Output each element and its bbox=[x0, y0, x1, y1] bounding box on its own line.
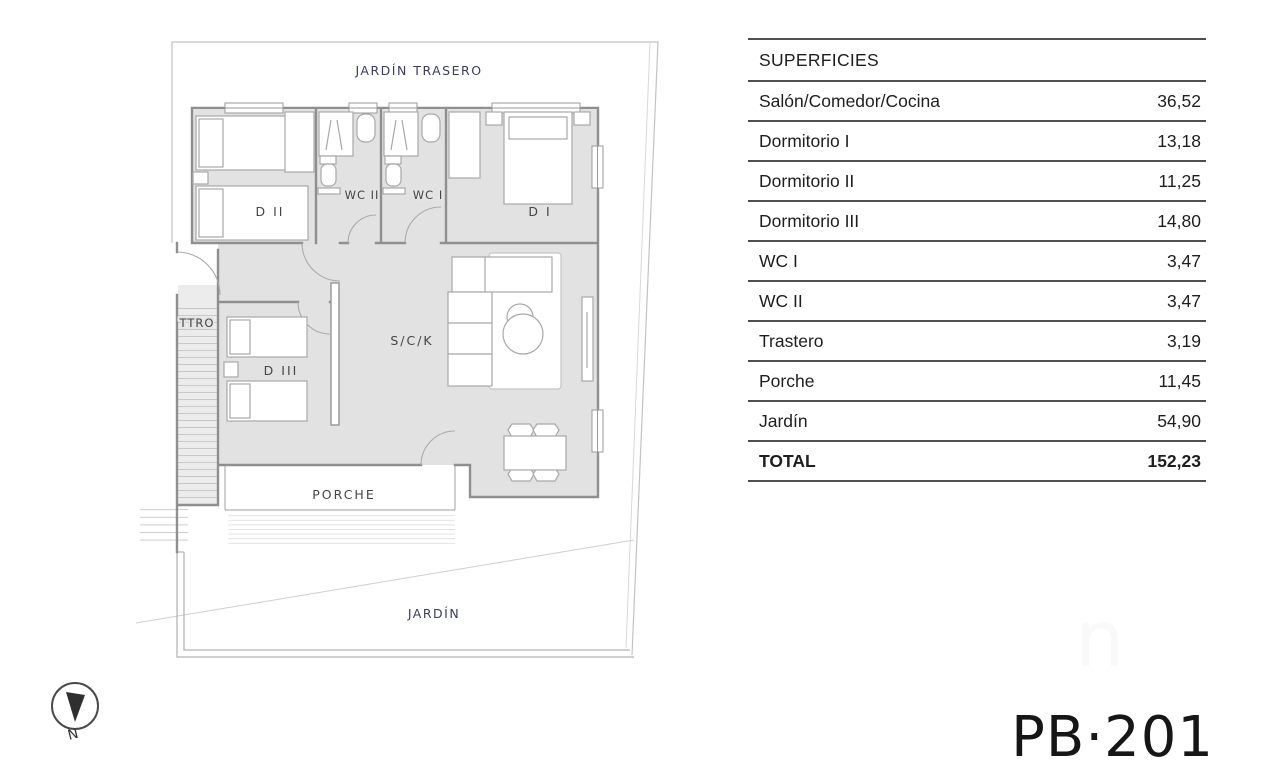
wc1-label: WC I bbox=[413, 188, 443, 202]
bedroom2-label: D II bbox=[256, 204, 285, 219]
table-row: Trastero 3,19 bbox=[748, 322, 1206, 362]
total-value: 152,23 bbox=[1147, 442, 1201, 480]
storage-hatch bbox=[178, 306, 217, 504]
row-value: 3,47 bbox=[1167, 242, 1201, 280]
table-row: Dormitorio III 14,80 bbox=[748, 202, 1206, 242]
row-label: Jardín bbox=[759, 402, 808, 440]
row-value: 14,80 bbox=[1157, 202, 1201, 240]
row-label: Dormitorio III bbox=[759, 202, 859, 240]
bedroom3-label: D III bbox=[264, 363, 299, 378]
surfaces-table: SUPERFICIES Salón/Comedor/Cocina 36,52 D… bbox=[748, 38, 1206, 482]
terrace-hatch bbox=[228, 513, 455, 546]
back-garden-label: JARDÍN TRASERO bbox=[354, 63, 482, 78]
north-arrow-icon bbox=[66, 692, 85, 722]
table-row: WC II 3,47 bbox=[748, 282, 1206, 322]
interior-thick-wall bbox=[331, 283, 339, 425]
table-total-row: TOTAL 152,23 bbox=[748, 442, 1206, 482]
table-row: WC I 3,47 bbox=[748, 242, 1206, 282]
table-row: Salón/Comedor/Cocina 36,52 bbox=[748, 82, 1206, 122]
dining-furniture bbox=[504, 424, 566, 481]
row-value: 54,90 bbox=[1157, 402, 1201, 440]
row-value: 11,25 bbox=[1159, 162, 1202, 200]
table-row: Dormitorio I 13,18 bbox=[748, 122, 1206, 162]
porch-label: PORCHE bbox=[312, 487, 375, 502]
row-label: Dormitorio II bbox=[759, 162, 854, 200]
row-label: Trastero bbox=[759, 322, 824, 360]
row-label: WC II bbox=[759, 282, 803, 320]
steps-hatch bbox=[140, 508, 188, 546]
row-value: 3,19 bbox=[1167, 322, 1201, 360]
plan-code: PB·201 bbox=[1011, 709, 1214, 768]
watermark: n bbox=[1075, 595, 1124, 685]
storage-label: TTRO bbox=[179, 316, 215, 330]
table-row: Dormitorio II 11,25 bbox=[748, 162, 1206, 202]
wc2-label: WC II bbox=[345, 188, 380, 202]
row-label: Salón/Comedor/Cocina bbox=[759, 82, 940, 120]
floor-plan: JARDÍN TRASERO D II WC II WC I D I TTRO … bbox=[0, 0, 740, 768]
row-label: Porche bbox=[759, 362, 814, 400]
table-header: SUPERFICIES bbox=[748, 40, 1206, 82]
north-compass: N bbox=[52, 683, 98, 744]
row-label: Dormitorio I bbox=[759, 122, 849, 160]
row-value: 36,52 bbox=[1157, 82, 1201, 120]
living-label: S/C/K bbox=[390, 333, 433, 348]
table-row: Porche 11,45 bbox=[748, 362, 1206, 402]
row-value: 3,47 bbox=[1167, 282, 1201, 320]
garden-label: JARDÍN bbox=[407, 606, 460, 621]
row-label: WC I bbox=[759, 242, 798, 280]
row-value: 13,18 bbox=[1157, 122, 1201, 160]
table-row: Jardín 54,90 bbox=[748, 402, 1206, 442]
total-label: TOTAL bbox=[759, 442, 816, 480]
row-value: 11,45 bbox=[1159, 362, 1202, 400]
bedroom1-label: D I bbox=[528, 204, 551, 219]
